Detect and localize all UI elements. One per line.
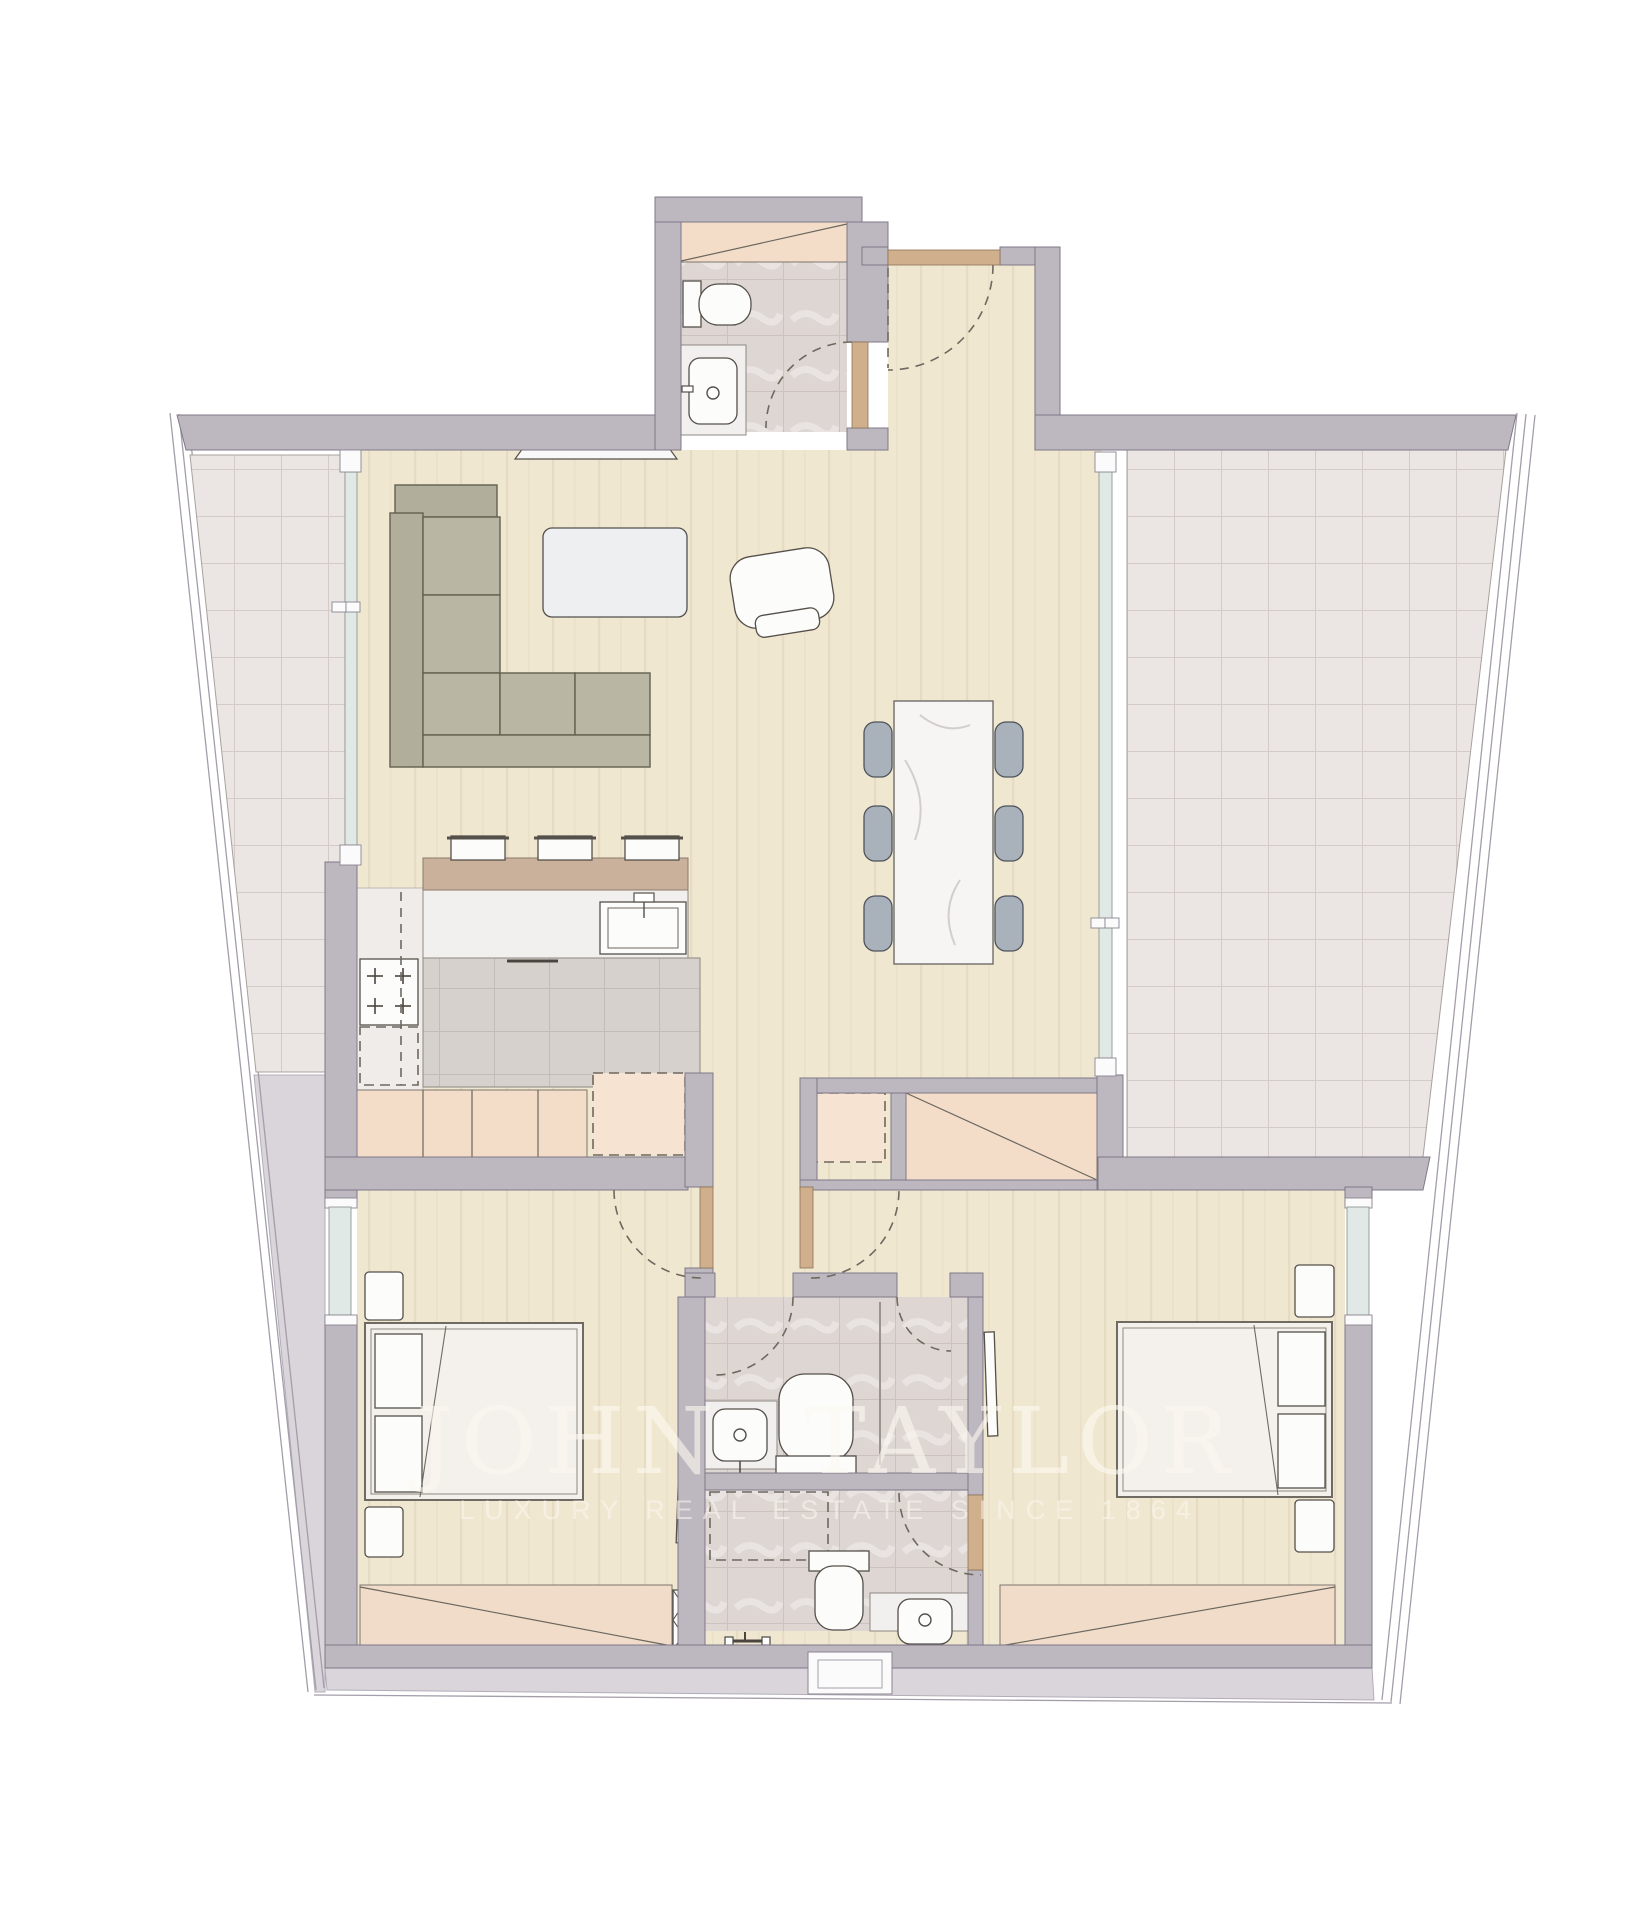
- bathroom-2-toilet-icon: [809, 1551, 869, 1630]
- nightstand: [365, 1272, 403, 1320]
- wall-bath1-north-mid: [793, 1273, 897, 1297]
- bedroom-1-wardrobe: [360, 1585, 672, 1648]
- wall-closet-divider: [891, 1093, 906, 1190]
- wall-entry-north-right: [1000, 247, 1035, 265]
- toilet-icon: [683, 281, 751, 327]
- bathroom-2-sink-icon: [898, 1599, 952, 1644]
- nightstand: [365, 1507, 403, 1557]
- wall-guestbath-east-upper: [847, 222, 888, 342]
- dining-chairs-right: [995, 722, 1023, 951]
- wall-bath1-north-w: [685, 1273, 715, 1297]
- bedroom-1-door-jamb: [700, 1187, 713, 1268]
- dining-chair: [864, 722, 892, 777]
- wall-corridor-west: [685, 1073, 713, 1187]
- nightstand: [1295, 1265, 1334, 1317]
- guest-bath-door-jamb: [852, 342, 868, 428]
- watermark-title: JOHN TAYLOR: [408, 1388, 1238, 1495]
- closet-dashed: [813, 1093, 885, 1162]
- wall-bath1-north-e: [950, 1273, 983, 1297]
- stove-burners-icon: [360, 959, 418, 1025]
- guest-bathroom: [681, 222, 847, 435]
- terrace-right-floor: [1127, 450, 1506, 1157]
- dining-area: [864, 701, 1023, 964]
- wall-bedroom1-north: [325, 1157, 688, 1190]
- floor-plan-page: JOHN TAYLOR LUXURY REAL ESTATE SINCE 186…: [0, 0, 1649, 1920]
- wall-terrace-right-north: [1035, 415, 1516, 450]
- bar-stool-icon: [534, 836, 596, 860]
- bedroom-1-window: [325, 1198, 357, 1325]
- bedroom-2-wardrobe: [1000, 1585, 1335, 1648]
- wall-corridor-east: [800, 1078, 817, 1187]
- bar-stool-icon: [447, 836, 509, 860]
- sink-icon: [681, 345, 746, 435]
- terrace-left-floor: [190, 455, 345, 1072]
- wall-living-north: [177, 415, 655, 450]
- dining-chairs-left: [864, 722, 892, 951]
- wall-guestbath-east-lower: [847, 428, 888, 450]
- dining-table: [894, 701, 993, 964]
- bedroom-2-window: [1345, 1198, 1372, 1325]
- entrance-step: [808, 1652, 892, 1694]
- wall-bath-east-lower: [968, 1570, 983, 1645]
- kitchen-cabinet-dashed: [593, 1073, 685, 1155]
- terrace-right: [1127, 450, 1506, 1157]
- breakfast-bar: [423, 858, 688, 890]
- wall-terrace-right-south: [1098, 1157, 1430, 1190]
- nightstand: [1295, 1500, 1334, 1552]
- dining-chair: [995, 806, 1023, 861]
- wall-closet-north: [800, 1078, 1097, 1093]
- wall-closet-south: [800, 1180, 1097, 1190]
- pillow: [375, 1416, 422, 1492]
- bar-stool-icon: [621, 836, 683, 860]
- wall-entry-north-left: [862, 247, 888, 265]
- wall-bedroom2-east-lower: [1345, 1317, 1372, 1668]
- wall-guestbath-west: [655, 197, 681, 450]
- watermark-subtitle: LUXURY REAL ESTATE SINCE 1864: [459, 1495, 1201, 1525]
- wall-west-lower: [325, 1317, 357, 1645]
- dining-chair: [995, 722, 1023, 777]
- coffee-table: [543, 528, 687, 617]
- kitchen-cabinet-row: [357, 1090, 587, 1157]
- bar-stools: [447, 836, 683, 860]
- dining-chair: [995, 896, 1023, 951]
- bedroom-2-door-jamb: [800, 1187, 813, 1268]
- pillow: [1278, 1414, 1325, 1488]
- entry-door-threshold: [888, 250, 1000, 265]
- closet-with-diagonal: [906, 1093, 1097, 1180]
- terrace-left: [190, 455, 345, 1072]
- pillow: [1278, 1332, 1325, 1406]
- dining-chair: [864, 806, 892, 861]
- wall-west-mid: [325, 862, 357, 1205]
- pillow: [375, 1334, 422, 1408]
- kitchen-counter-run: [423, 958, 700, 1087]
- floor-plan-svg: JOHN TAYLOR LUXURY REAL ESTATE SINCE 186…: [0, 0, 1649, 1920]
- wall-guestbath-north: [655, 197, 862, 222]
- watermark: JOHN TAYLOR LUXURY REAL ESTATE SINCE 186…: [408, 1388, 1238, 1525]
- wall-dining-southeast: [1097, 1075, 1123, 1157]
- kitchen-sink-icon: [600, 893, 686, 954]
- dining-chair: [864, 896, 892, 951]
